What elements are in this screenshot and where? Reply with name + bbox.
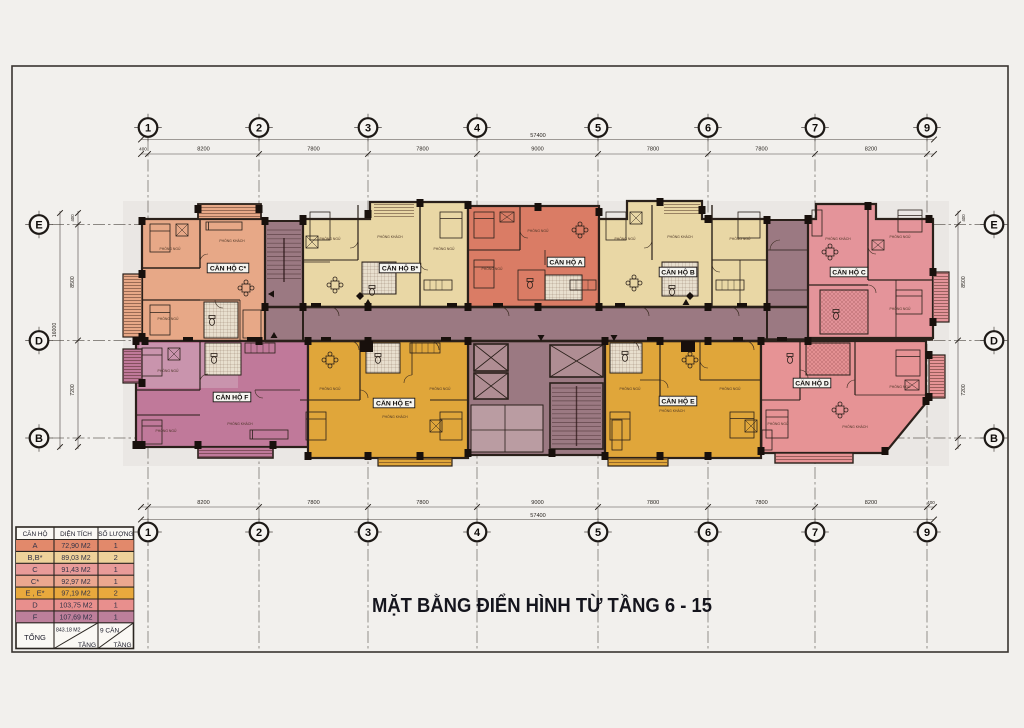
svg-text:57400: 57400 [530,133,546,139]
svg-text:8200: 8200 [865,500,877,506]
svg-text:B: B [990,433,998,445]
svg-text:DIỆN TÍCH: DIỆN TÍCH [60,529,92,538]
svg-text:9 CĂN: 9 CĂN [100,625,119,634]
svg-text:7800: 7800 [755,500,767,506]
svg-text:107,69 M2: 107,69 M2 [59,615,92,622]
svg-text:8500: 8500 [961,276,967,288]
svg-text:3: 3 [365,527,371,539]
svg-text:2: 2 [114,589,118,598]
svg-text:D: D [32,601,38,610]
svg-text:7800: 7800 [647,147,659,153]
svg-text:5: 5 [595,122,601,134]
svg-text:7200: 7200 [961,384,967,396]
svg-text:2: 2 [256,527,262,539]
svg-text:72,90 M2: 72,90 M2 [61,543,90,550]
svg-text:7: 7 [812,527,818,539]
svg-text:7800: 7800 [307,500,319,506]
svg-text:E: E [35,219,42,231]
svg-text:7800: 7800 [416,500,428,506]
svg-text:A: A [32,541,37,550]
svg-text:8500: 8500 [70,276,76,288]
svg-text:91,43 M2: 91,43 M2 [61,567,90,574]
svg-text:B: B [35,433,43,445]
svg-text:7800: 7800 [755,147,767,153]
svg-text:400: 400 [927,500,935,505]
svg-text:9000: 9000 [531,147,543,153]
svg-text:8200: 8200 [197,500,209,506]
svg-text:8200: 8200 [197,147,209,153]
svg-text:89,03 M2: 89,03 M2 [61,555,90,562]
svg-text:1: 1 [145,527,151,539]
svg-text:8200: 8200 [865,147,877,153]
svg-text:2: 2 [114,553,118,562]
svg-text:7800: 7800 [416,147,428,153]
svg-text:7: 7 [812,122,818,134]
svg-text:D: D [35,335,43,347]
svg-text:7800: 7800 [307,147,319,153]
svg-text:C: C [32,565,38,574]
svg-text:103,75 M2: 103,75 M2 [59,603,92,610]
svg-text:7800: 7800 [647,500,659,506]
svg-text:1: 1 [114,577,118,586]
svg-text:9: 9 [924,527,930,539]
svg-text:843.18 M2: 843.18 M2 [56,627,81,633]
svg-text:E: E [990,219,997,231]
svg-text:MẶT BẰNG ĐIỂN HÌNH TỪ TẦNG 6 -: MẶT BẰNG ĐIỂN HÌNH TỪ TẦNG 6 - 15 [372,593,712,617]
svg-text:4: 4 [474,527,481,539]
svg-text:3: 3 [365,122,371,134]
svg-text:7200: 7200 [70,384,76,396]
svg-text:C*: C* [31,577,39,586]
svg-text:16000: 16000 [52,323,58,338]
svg-text:1: 1 [145,122,151,134]
svg-text:6: 6 [705,122,711,134]
svg-text:1: 1 [114,565,118,574]
svg-text:1: 1 [114,613,118,622]
svg-text:6: 6 [705,527,711,539]
svg-text:9000: 9000 [531,500,543,506]
svg-text:2: 2 [256,122,262,134]
svg-text:97,19 M2: 97,19 M2 [61,591,90,598]
svg-text:92,97 M2: 92,97 M2 [61,579,90,586]
svg-text:1: 1 [114,541,118,550]
svg-text:5: 5 [595,527,601,539]
svg-text:TỔNG: TỔNG [24,633,46,642]
svg-text:CĂN HỘ: CĂN HỘ [23,529,48,538]
svg-text:9: 9 [924,122,930,134]
svg-text:400: 400 [70,214,75,222]
svg-text:1: 1 [114,601,118,610]
svg-text:400: 400 [139,147,147,152]
svg-text:400: 400 [961,214,966,222]
svg-text:F: F [33,613,38,622]
svg-text:E , E*: E , E* [25,589,44,598]
svg-text:D: D [990,335,998,347]
svg-text:B,B*: B,B* [27,553,42,562]
svg-text:4: 4 [474,122,481,134]
svg-text:57400: 57400 [530,513,546,519]
